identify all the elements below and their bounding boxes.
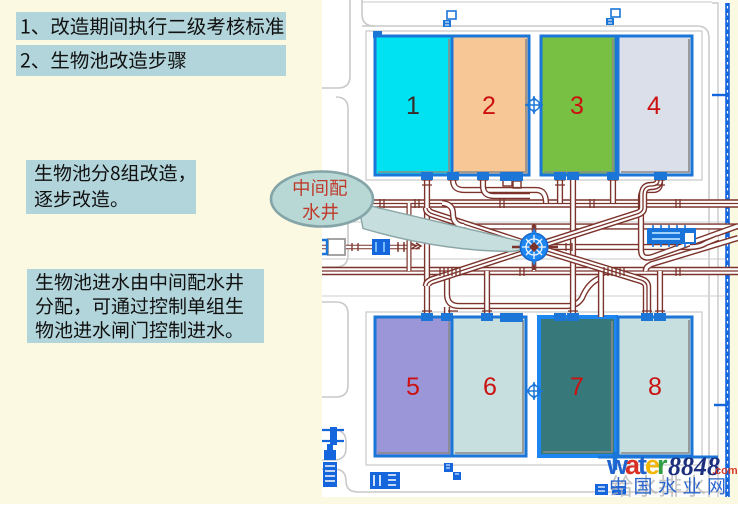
svg-text:.com: .com bbox=[712, 465, 738, 477]
svg-text:2: 2 bbox=[482, 92, 496, 120]
svg-text:6: 6 bbox=[483, 373, 497, 401]
svg-text:7: 7 bbox=[570, 373, 584, 401]
svg-text:5: 5 bbox=[406, 373, 420, 401]
svg-text:1: 1 bbox=[406, 92, 420, 120]
svg-text:3: 3 bbox=[570, 92, 584, 120]
svg-text:r: r bbox=[657, 450, 668, 480]
svg-text:8: 8 bbox=[648, 373, 662, 401]
svg-text:4: 4 bbox=[647, 92, 661, 120]
